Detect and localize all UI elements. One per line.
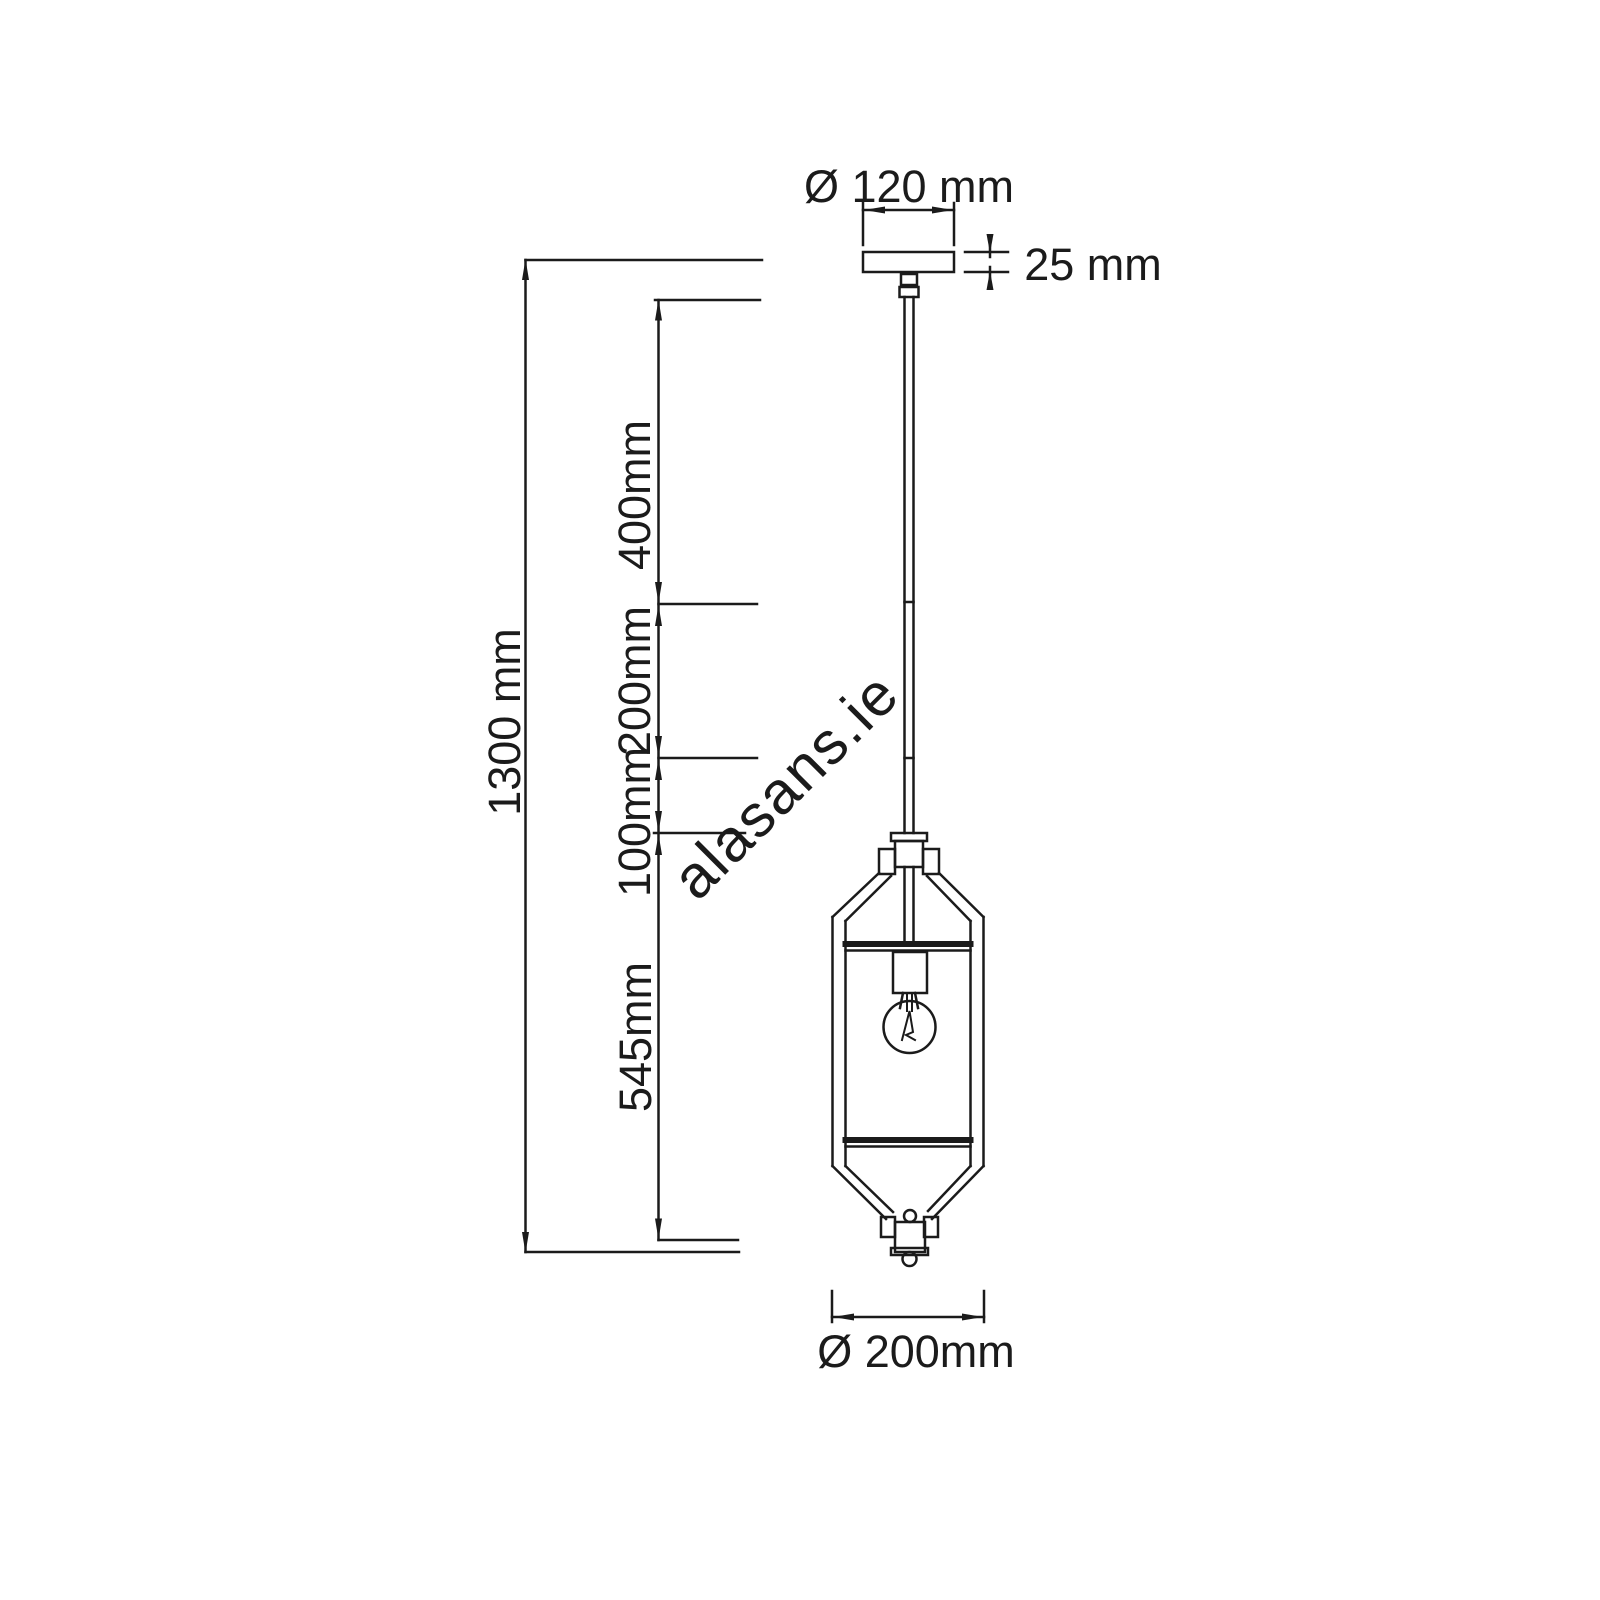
bottom-slope-left-inner bbox=[846, 1166, 894, 1212]
label-canopy-diameter: Ø 120 mm bbox=[804, 161, 1014, 212]
label-segment-200: 200mm bbox=[609, 606, 660, 756]
arrow-down-seg-1240 bbox=[655, 1219, 662, 1240]
label-total-height: 1300 mm bbox=[479, 628, 530, 816]
canopy-plate bbox=[863, 252, 954, 272]
lamp-socket bbox=[893, 952, 927, 993]
collar-tab-left bbox=[879, 849, 895, 874]
arrow-down-seg-604 bbox=[655, 582, 662, 603]
dim-rod-segments bbox=[654, 300, 760, 1240]
bulb-filament bbox=[902, 1011, 915, 1040]
label-segment-100: 100mm bbox=[609, 747, 660, 897]
arrow-up-25mm bbox=[987, 271, 994, 290]
dimension-arrowheads bbox=[522, 207, 994, 1321]
dimension-diagram-page: alasans.ie bbox=[0, 0, 1600, 1600]
dim-lantern-width bbox=[832, 1291, 984, 1322]
label-lantern-height: 545mm bbox=[610, 962, 661, 1112]
collar-tab-right bbox=[923, 849, 939, 874]
watermark: alasans.ie bbox=[659, 659, 912, 912]
label-lantern-width: Ø 200mm bbox=[817, 1326, 1015, 1377]
dim-canopy-height bbox=[965, 240, 1008, 284]
arrow-up-seg-300 bbox=[655, 300, 662, 321]
arrow-right-width bbox=[962, 1314, 983, 1321]
watermark-text: alasans.ie bbox=[659, 659, 912, 912]
label-segment-400: 400mm bbox=[609, 420, 660, 570]
arrow-left-width bbox=[833, 1314, 854, 1321]
collar-body bbox=[895, 841, 923, 867]
arrow-up-total-top bbox=[522, 259, 529, 280]
finial-tab-left bbox=[881, 1217, 895, 1237]
canopy-nipple-upper bbox=[901, 274, 917, 285]
bottom-slope-right-outer bbox=[932, 1166, 984, 1219]
pendant-lamp-dimension-drawing: alasans.ie bbox=[0, 0, 1600, 1600]
bottom-slope-left-outer bbox=[833, 1166, 887, 1219]
light-bulb bbox=[884, 1001, 936, 1053]
finial-top-knob bbox=[904, 1210, 916, 1222]
label-canopy-height: 25 mm bbox=[1024, 239, 1162, 290]
arrow-down-total-bottom bbox=[522, 1232, 529, 1253]
canopy-nipple-lower bbox=[900, 287, 919, 297]
bulb-neck-left bbox=[900, 993, 903, 1008]
arrow-down-25mm bbox=[987, 234, 994, 253]
bottom-slope-right-inner bbox=[928, 1166, 971, 1211]
